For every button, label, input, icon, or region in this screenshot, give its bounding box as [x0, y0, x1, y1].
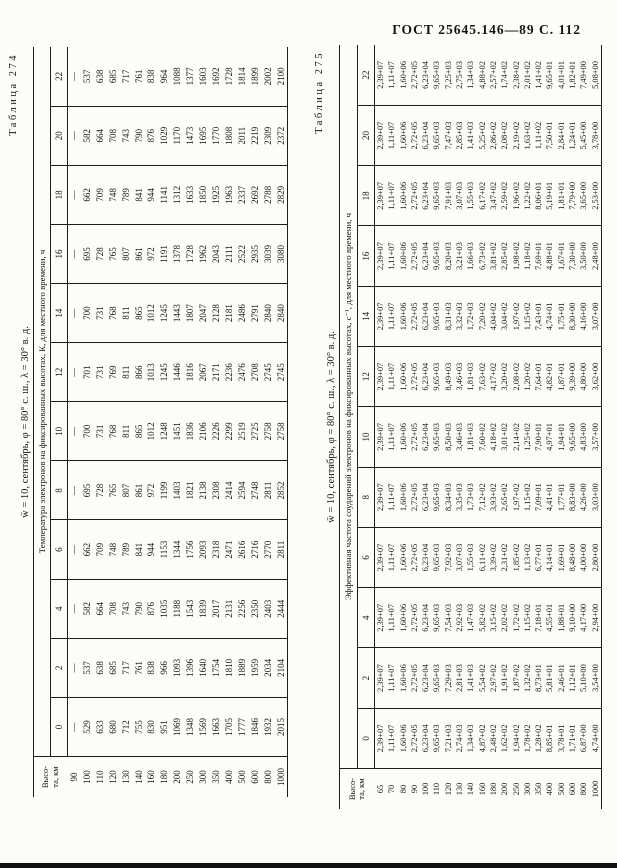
- table-row: 3001569164018392093213821062067204719621…: [197, 47, 210, 797]
- table-cell: 811: [120, 284, 133, 343]
- table-cell: 1,72+03: [465, 286, 476, 346]
- table-cell: 1,60+06: [398, 166, 409, 226]
- table-cell: 1035: [158, 579, 171, 638]
- table-cell: 664: [94, 579, 107, 638]
- table-cell: 2034: [262, 638, 275, 697]
- table-cell: 2486: [236, 284, 249, 343]
- table-cell: 1,22+02: [522, 166, 533, 226]
- table-cell: 2,53+00: [590, 166, 602, 226]
- row-header-altitude: 100: [81, 757, 94, 798]
- table-row: 10004,74+003,54+002,94+002,80+003,03+003…: [590, 45, 602, 809]
- row-header-altitude: 200: [171, 757, 184, 798]
- row-header-altitude: 130: [120, 757, 133, 798]
- table-cell: 1,66+03: [465, 226, 476, 286]
- table-cell: 743: [120, 579, 133, 638]
- row-header-altitude: 180: [158, 757, 171, 798]
- row-header-label: Высо-та, км: [340, 769, 375, 810]
- table-cell: 537: [81, 47, 94, 106]
- row-header-altitude: 160: [477, 769, 488, 810]
- table-cell: 7,64+01: [533, 347, 544, 407]
- table-cell: 9,10+00: [567, 588, 578, 648]
- table-cell: 685: [107, 638, 120, 697]
- table-cell: 7,20+02: [477, 286, 488, 346]
- table-cell: 1188: [171, 579, 184, 638]
- row-header-altitude: 800: [578, 769, 589, 810]
- table-cell: 2,72+05: [409, 467, 420, 527]
- table-cell: 1932: [262, 697, 275, 756]
- table-cell: 638: [94, 47, 107, 106]
- table-cell: 6,23+04: [420, 407, 431, 467]
- table-cell: 1,97+02: [511, 467, 522, 527]
- table-row: 902,72+052,72+052,72+052,72+052,72+052,7…: [409, 45, 420, 809]
- table-cell: 1,81+03: [465, 347, 476, 407]
- table-cell: 1,88+01: [556, 588, 567, 648]
- table-cell: 7,90+01: [533, 407, 544, 467]
- table-cell: 4,14+01: [544, 527, 555, 587]
- table-cell: 2,72+05: [409, 588, 420, 648]
- table-cell: 861: [133, 224, 146, 283]
- table-cell: 6,23+04: [420, 588, 431, 648]
- table-cell: 7,92+03: [443, 527, 454, 587]
- table-cell: 2,72+05: [409, 286, 420, 346]
- row-header-altitude: 90: [68, 757, 81, 798]
- table-row: 6001846195923502716274827252708279129352…: [249, 47, 262, 797]
- table-cell: 700: [81, 284, 94, 343]
- table-cell: 1603: [197, 47, 210, 106]
- row-header-altitude: 180: [488, 769, 499, 810]
- table-cell: 1248: [158, 402, 171, 461]
- table-cell: —: [68, 402, 81, 461]
- table-cell: 1,41+02: [533, 45, 544, 105]
- table-cell: 5,10+00: [578, 648, 589, 708]
- table-cell: 1,75+01: [556, 286, 567, 346]
- table-cell: 1170: [171, 106, 184, 165]
- table-cell: 2337: [236, 165, 249, 224]
- table-cell: 2716: [249, 520, 262, 579]
- table-cell: 3,04+02: [499, 286, 510, 346]
- table-cell: 765: [107, 461, 120, 520]
- table-cell: 2,39+07: [375, 226, 387, 286]
- row-header-altitude: 140: [465, 769, 476, 810]
- table-cell: 1963: [223, 165, 236, 224]
- table-cell: 4,88+01: [544, 226, 555, 286]
- table-cell: 2171: [210, 343, 223, 402]
- table-cell: 2829: [275, 165, 288, 224]
- table-cell: 1029: [158, 106, 171, 165]
- table-cell: 972: [145, 224, 158, 283]
- table-cell: 3039: [262, 224, 275, 283]
- table-cell: 8,06+01: [533, 166, 544, 226]
- table-cell: 1,96+02: [511, 166, 522, 226]
- table-cell: 2,81+03: [454, 648, 465, 708]
- table-cell: 3080: [275, 224, 288, 283]
- table-cell: 2745: [275, 343, 288, 402]
- table-cell: 1,47+03: [465, 588, 476, 648]
- table-row: 801,60+061,60+061,60+061,60+061,60+061,6…: [398, 45, 409, 809]
- table-cell: 1473: [184, 106, 197, 165]
- table-cell: 2708: [249, 343, 262, 402]
- table-cell: 1,18+02: [522, 226, 533, 286]
- table-cell: 1899: [249, 47, 262, 106]
- table-cell: 2,46+01: [556, 648, 567, 708]
- table-cell: 7,12+02: [477, 467, 488, 527]
- table-cell: 4,97+01: [544, 407, 555, 467]
- table-cell: 6,23+04: [420, 648, 431, 708]
- table-cell: 2,39+07: [375, 105, 387, 165]
- table-cell: 2318: [210, 520, 223, 579]
- table-cell: 1,11+07: [386, 527, 397, 587]
- table-cell: 1,11+07: [386, 286, 397, 346]
- table-cell: 1,62+02: [499, 708, 510, 768]
- table-row: 1109,65+039,65+039,65+039,65+039,65+039,…: [431, 45, 442, 809]
- table-cell: 2852: [275, 461, 288, 520]
- table-cell: 2,48+02: [488, 708, 499, 768]
- col-header-hour: 10: [51, 402, 68, 461]
- table-cell: 748: [107, 165, 120, 224]
- table-cell: 731: [94, 343, 107, 402]
- table-cell: 6,73+02: [477, 226, 488, 286]
- table-cell: 1,81+01: [556, 166, 567, 226]
- table-cell: 1312: [171, 165, 184, 224]
- table-cell: 4,16+00: [578, 286, 589, 346]
- table-cell: 1,60+06: [398, 527, 409, 587]
- table-cell: 7,18+01: [533, 588, 544, 648]
- table-cell: 7,47+03: [443, 105, 454, 165]
- row-header-altitude: 300: [522, 769, 533, 810]
- table-cell: 1153: [158, 520, 171, 579]
- table-cell: 3,20+02: [499, 347, 510, 407]
- table-row: 3001,78+021,32+021,15+021,13+021,15+021,…: [522, 45, 533, 809]
- row-header-altitude: 140: [133, 757, 146, 798]
- table-cell: 582: [81, 579, 94, 638]
- table-cell: 2758: [275, 402, 288, 461]
- table-cell: 1012: [145, 402, 158, 461]
- row-header-altitude: 110: [431, 769, 442, 810]
- table-row: 1802,48+022,97+023,15+023,39+023,93+024,…: [488, 45, 499, 809]
- table-cell: 5,25+02: [477, 105, 488, 165]
- table-cell: 3,78+00: [590, 105, 602, 165]
- col-header-hour: 6: [51, 520, 68, 579]
- table-cell: 708: [107, 579, 120, 638]
- table-cell: 2,72+05: [409, 708, 420, 768]
- table-cell: 1446: [171, 343, 184, 402]
- table-cell: 1,71+01: [567, 708, 578, 768]
- table-cell: 1377: [184, 47, 197, 106]
- table-cell: 6,23+04: [420, 226, 431, 286]
- table-cell: 7,54+03: [443, 588, 454, 648]
- table-cell: 1,11+07: [386, 105, 397, 165]
- table-cell: 680: [107, 697, 120, 756]
- table-cell: 2,92+03: [454, 588, 465, 648]
- table-cell: 2,72+05: [409, 105, 420, 165]
- table-cell: 700: [81, 402, 94, 461]
- table-cell: 972: [145, 461, 158, 520]
- table-cell: 4,87+02: [477, 708, 488, 768]
- table-cell: 1821: [184, 461, 197, 520]
- table-cell: 1,41+03: [465, 648, 476, 708]
- table-cell: 7,60+02: [477, 407, 488, 467]
- col-header-hour: 4: [358, 588, 375, 648]
- row-header-altitude: 200: [499, 769, 510, 810]
- table-cell: 2811: [262, 461, 275, 520]
- col-header-hour: 12: [51, 343, 68, 402]
- table-cell: 701: [81, 343, 94, 402]
- table-cell: 9,65+03: [431, 347, 442, 407]
- table-row: 1006,23+046,23+046,23+046,23+046,23+046,…: [420, 45, 431, 809]
- table-cell: 1141: [158, 165, 171, 224]
- table-cell: 838: [145, 47, 158, 106]
- table-cell: 1069: [171, 697, 184, 756]
- table-cell: 8,85+01: [544, 708, 555, 768]
- table-cell: 2219: [249, 106, 262, 165]
- table-cell: 1,60+06: [398, 347, 409, 407]
- table-cell: 9,65+03: [431, 286, 442, 346]
- table-cell: 2,39+07: [375, 407, 387, 467]
- table-cell: 1,11+07: [386, 166, 397, 226]
- table-cell: 2138: [197, 461, 210, 520]
- table-cell: 3,62+00: [590, 347, 602, 407]
- table-cell: 1,73+03: [465, 467, 476, 527]
- table-cell: 2,39+07: [375, 166, 387, 226]
- table-cell: 1,55+03: [465, 527, 476, 587]
- table-cell: 2,94+00: [590, 588, 602, 648]
- table-cell: 865: [133, 284, 146, 343]
- table-row: 5001777188922562616259425192476248625222…: [236, 47, 249, 797]
- table-cell: 2,39+07: [375, 708, 387, 768]
- table-cell: 1,87+01: [556, 347, 567, 407]
- col-header-hour: 4: [51, 579, 68, 638]
- table-cell: 6,87+00: [578, 708, 589, 768]
- table-cell: 7,50+01: [544, 105, 555, 165]
- table-cell: 2,72+05: [409, 407, 420, 467]
- table-cell: 8,34+03: [443, 467, 454, 527]
- table-cell: 731: [94, 402, 107, 461]
- table-row: 701,11+071,11+071,11+071,11+071,11+071,1…: [386, 45, 397, 809]
- table-cell: 1,41+03: [465, 105, 476, 165]
- table-row: 2501,94+021,87+021,72+021,85+021,97+022,…: [511, 45, 522, 809]
- table-cell: 1088: [171, 47, 184, 106]
- table-row: 3501663175420172318230822262171212820431…: [210, 47, 223, 797]
- table-cell: 1,77+01: [556, 467, 567, 527]
- table-cell: 1,85+02: [511, 527, 522, 587]
- table-cell: 2372: [275, 106, 288, 165]
- table-cell: —: [68, 520, 81, 579]
- col-header-hour: 18: [51, 165, 68, 224]
- table-cell: 1403: [171, 461, 184, 520]
- table-cell: 761: [133, 47, 146, 106]
- table-cell: —: [68, 224, 81, 283]
- table-cell: —: [68, 697, 81, 756]
- table-cell: 8,20+03: [443, 226, 454, 286]
- table-cell: 1,87+02: [511, 648, 522, 708]
- table-cell: 7,43+01: [533, 286, 544, 346]
- col-header-hour: 0: [51, 697, 68, 756]
- table-cell: 9,65+03: [431, 226, 442, 286]
- table-cell: 638: [94, 638, 107, 697]
- table-cell: 1,11+07: [386, 467, 397, 527]
- table-cell: 3,54+00: [590, 648, 602, 708]
- row-header-altitude: 350: [533, 769, 544, 810]
- table-cell: 1191: [158, 224, 171, 283]
- table-cell: 3,01+02: [499, 407, 510, 467]
- table-cell: 2011: [236, 106, 249, 165]
- table-cell: 2748: [249, 461, 262, 520]
- table-cell: 6,11+02: [477, 527, 488, 587]
- table-cell: 3,65+00: [578, 166, 589, 226]
- table-cell: 748: [107, 520, 120, 579]
- table-cell: 2,39+07: [375, 588, 387, 648]
- table-cell: 4,55+01: [544, 588, 555, 648]
- table-row: 1302,74+032,81+032,92+033,07+033,35+033,…: [454, 45, 465, 809]
- table-subtitle: Эффективная частота соударений электроно…: [340, 45, 358, 769]
- table-cell: 731: [94, 284, 107, 343]
- col-header-hour: 2: [358, 648, 375, 708]
- table-caption-275: Таблица 275: [314, 45, 325, 809]
- table-cell: 1199: [158, 461, 171, 520]
- table-cell: 3,46+03: [454, 407, 465, 467]
- row-header-altitude: 600: [249, 757, 262, 798]
- table-cell: 3,21+03: [454, 226, 465, 286]
- table-cell: 6,23+04: [420, 286, 431, 346]
- table-cell: 2770: [262, 520, 275, 579]
- table-cell: 1,11+07: [386, 588, 397, 648]
- table-cell: 1012: [145, 284, 158, 343]
- table-cell: 2111: [223, 224, 236, 283]
- table-cell: 1,20+02: [522, 347, 533, 407]
- table-cell: 4,74+00: [590, 708, 602, 768]
- table-cell: 2,02+02: [499, 588, 510, 648]
- table-cell: 2,72+05: [409, 648, 420, 708]
- table-cell: 2791: [249, 284, 262, 343]
- row-header-altitude: 500: [236, 757, 249, 798]
- table-cell: 2,75+03: [454, 45, 465, 105]
- table-cell: 6,17+02: [477, 166, 488, 226]
- table-cell: 9,65+03: [431, 105, 442, 165]
- table-cell: 1814: [236, 47, 249, 106]
- table-cell: 2,39+07: [375, 347, 387, 407]
- table-cell: 755: [133, 697, 146, 756]
- table-cell: 9,65+03: [431, 407, 442, 467]
- row-header-altitude: 400: [544, 769, 555, 810]
- table-cell: 2,80+00: [590, 527, 602, 587]
- table-cell: 1,13+02: [522, 527, 533, 587]
- table-cell: 4,00+00: [578, 527, 589, 587]
- table-cell: 768: [107, 402, 120, 461]
- table-cell: 1695: [197, 106, 210, 165]
- table-cell: 1245: [158, 284, 171, 343]
- table-cell: 2476: [236, 343, 249, 402]
- table-cell: 2,74+03: [454, 708, 465, 768]
- table-cell: 2,01+02: [522, 45, 533, 105]
- table-cell: 790: [133, 579, 146, 638]
- table-cell: 717: [120, 638, 133, 697]
- table-cell: 9,65+00: [567, 407, 578, 467]
- table-cell: 2692: [249, 165, 262, 224]
- table-cell: 8,31+03: [443, 286, 454, 346]
- table-cell: 2017: [210, 579, 223, 638]
- table-cell: 3,35+03: [454, 467, 465, 527]
- col-header-hour: 16: [51, 224, 68, 283]
- row-header-altitude: 160: [145, 757, 158, 798]
- table-cell: 1569: [197, 697, 210, 756]
- table-cell: 966: [158, 638, 171, 697]
- table-row: 1000201521042444281128522758274528403080…: [275, 47, 288, 797]
- table-cell: 1705: [223, 697, 236, 756]
- table-cell: 2100: [275, 47, 288, 106]
- table-cell: 811: [120, 402, 133, 461]
- table-cell: 1808: [223, 106, 236, 165]
- table-cell: 2002: [262, 47, 275, 106]
- table-cell: 709: [94, 520, 107, 579]
- table-row: 1401,34+031,41+031,47+031,55+031,73+031,…: [465, 45, 476, 809]
- table-cell: 7,79+00: [567, 166, 578, 226]
- col-header-hour: 16: [358, 226, 375, 286]
- row-header-altitude: 1000: [275, 757, 288, 798]
- table-cell: 664: [94, 106, 107, 165]
- table-cell: 2594: [236, 461, 249, 520]
- table-group-274: Таблица 274 w̄ = 10, сентябрь, φ = 80° с…: [8, 47, 298, 797]
- table-cell: 717: [120, 47, 133, 106]
- table-cell: 662: [81, 520, 94, 579]
- table-cell: 2128: [210, 284, 223, 343]
- col-header-hour: 20: [358, 105, 375, 165]
- table-cell: 4,88+02: [477, 45, 488, 105]
- table-cell: 1,60+06: [398, 588, 409, 648]
- table-row: 1809519661035115311991248124512451191114…: [158, 47, 171, 797]
- table-cell: 1,67+01: [556, 226, 567, 286]
- table-cell: 5,81+01: [544, 648, 555, 708]
- table-row: 90————————————: [68, 47, 81, 797]
- table-cell: 685: [107, 47, 120, 106]
- table-cell: 1,72+02: [511, 588, 522, 648]
- table-cell: 2,39+07: [375, 527, 387, 587]
- table-cell: 6,23+04: [420, 527, 431, 587]
- table-cell: 7,21+03: [443, 708, 454, 768]
- table-cell: 2,65+02: [499, 467, 510, 527]
- col-header-hour: 18: [358, 166, 375, 226]
- table-cell: 2,72+05: [409, 226, 420, 286]
- table-cell: 6,23+04: [420, 467, 431, 527]
- table-cell: 1451: [171, 402, 184, 461]
- table-cell: 1,11+07: [386, 226, 397, 286]
- table-cell: 861: [133, 461, 146, 520]
- col-header-hour: 12: [358, 347, 375, 407]
- table-cell: 768: [107, 284, 120, 343]
- table-cell: 2106: [197, 402, 210, 461]
- table-cell: 9,65+03: [431, 467, 442, 527]
- table-cell: 3,81+02: [488, 226, 499, 286]
- table-cell: 9,65+03: [431, 588, 442, 648]
- table-cell: 3,50+00: [578, 226, 589, 286]
- table-cell: 2811: [275, 520, 288, 579]
- table-cell: 6,23+04: [420, 166, 431, 226]
- table-cell: 1,11+07: [386, 708, 397, 768]
- table-cell: 1728: [184, 224, 197, 283]
- table-subtitle: Температура электронов на фиксированных …: [34, 47, 51, 757]
- row-header-altitude: 120: [443, 769, 454, 810]
- table-cell: 944: [145, 520, 158, 579]
- table-cell: —: [68, 106, 81, 165]
- table-cell: 2,59+02: [499, 166, 510, 226]
- table-cell: 537: [81, 638, 94, 697]
- table-cell: 2299: [223, 402, 236, 461]
- table-cell: 8,49+03: [443, 347, 454, 407]
- table-cell: 4,17+02: [488, 347, 499, 407]
- table-cell: 1543: [184, 579, 197, 638]
- table-cell: 708: [107, 106, 120, 165]
- table-cell: 5,08+00: [590, 45, 602, 105]
- row-header-label: Высо-та, км: [34, 757, 68, 798]
